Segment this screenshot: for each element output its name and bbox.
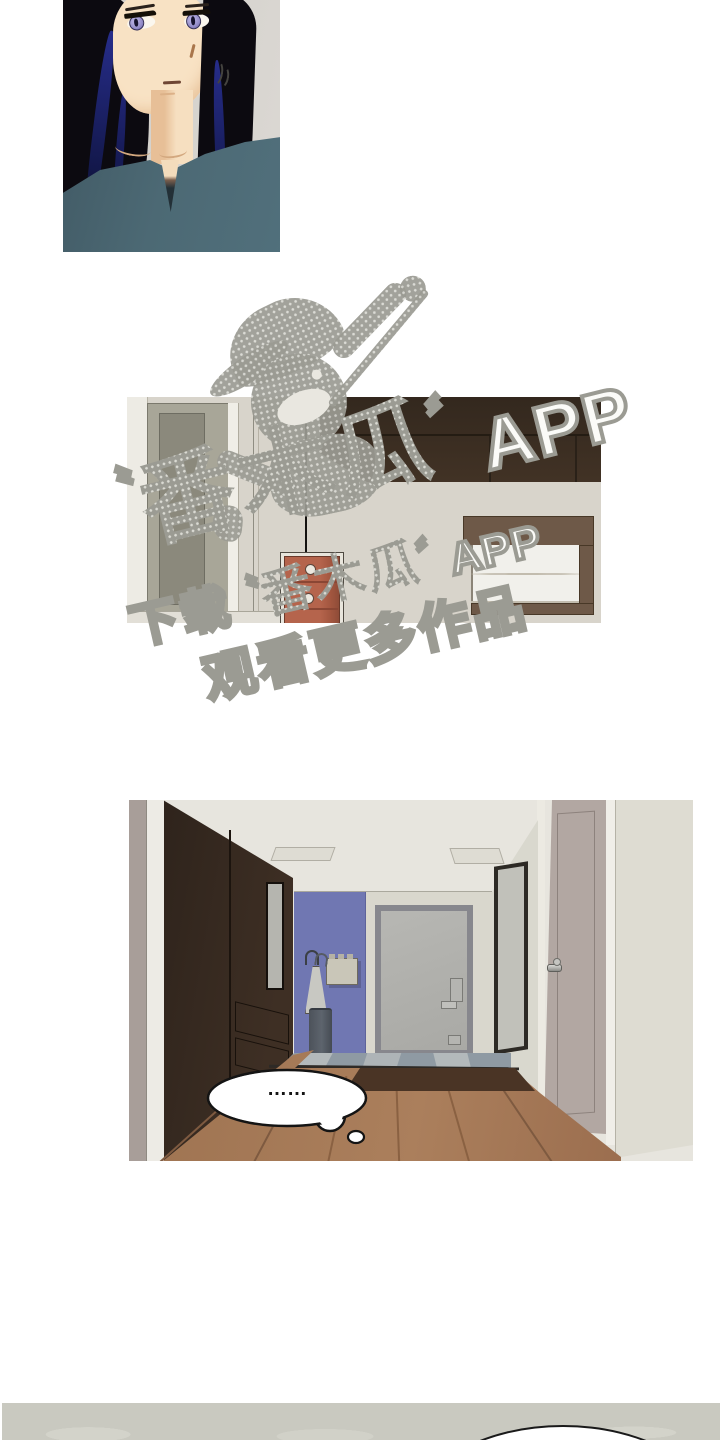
umbrella-handle-hook: [314, 952, 329, 967]
character-eye-left: [124, 10, 158, 32]
door-trim: [228, 403, 239, 613]
character-eye-right: [182, 9, 211, 30]
wall-corner-line: [365, 892, 366, 1053]
wall-corner-line: [253, 397, 254, 623]
mascot-fist: [397, 273, 428, 304]
cabinet-seam: [489, 436, 491, 482]
umbrella-stand: [309, 1008, 332, 1055]
genkan-tile-light: [433, 1053, 470, 1067]
wall-top-line: [294, 891, 492, 892]
window-shade: [471, 545, 584, 605]
ceiling-light: [449, 848, 504, 864]
door-trim: [537, 800, 545, 1136]
hall-door-panel-line: [557, 811, 595, 1116]
wall-mirror: [494, 861, 528, 1054]
panel-hallway: ……: [129, 800, 693, 1161]
door-stopper: [448, 1035, 461, 1045]
pendant-cord: [305, 397, 307, 553]
door-lock-bar: [441, 1001, 457, 1009]
door-handle-rose: [553, 958, 561, 966]
ceiling-light: [270, 847, 335, 861]
panel-next-teaser: [2, 1403, 720, 1440]
left-wall-strip: [129, 800, 146, 1161]
wall-box: [326, 958, 358, 985]
mascot-stick: [327, 288, 430, 408]
comic-page: 〝番木瓜〞APP 下载〝番木瓜〞APP 观看更多作品: [0, 0, 720, 1440]
kitchen-floor-strip: [127, 611, 282, 623]
wall-corner-line: [258, 397, 259, 623]
mascot-arm: [328, 278, 411, 362]
wall-box-studs: [329, 954, 353, 959]
drawer-seam: [284, 581, 338, 583]
mascot-cap-brim: [204, 332, 295, 405]
left-trim-strip: [146, 800, 164, 1161]
thought-bubble: [187, 1058, 387, 1153]
thought-bubble-text: ……: [227, 1078, 347, 1101]
drawer-seam: [284, 608, 338, 610]
door-trim: [127, 397, 148, 623]
panel-kitchen: [127, 397, 601, 623]
closet-door-panel: [159, 413, 205, 605]
door-trim: [606, 800, 615, 1145]
drawer-knob: [303, 593, 314, 604]
cabinet-seam: [323, 434, 601, 436]
window-sill: [471, 603, 594, 615]
drawer-knob: [305, 564, 316, 575]
cabinet-seam: [575, 436, 577, 482]
panel-portrait: [63, 0, 280, 252]
mascot-eye: [311, 369, 323, 381]
wardrobe-mirror: [266, 882, 284, 990]
speech-bubble-peek: [415, 1425, 711, 1440]
mascot-cap: [213, 280, 351, 396]
window-valance: [463, 516, 594, 547]
right-wall: [615, 800, 693, 1161]
door-lock-unit: [450, 978, 463, 1002]
shade-roll-line: [471, 573, 581, 575]
